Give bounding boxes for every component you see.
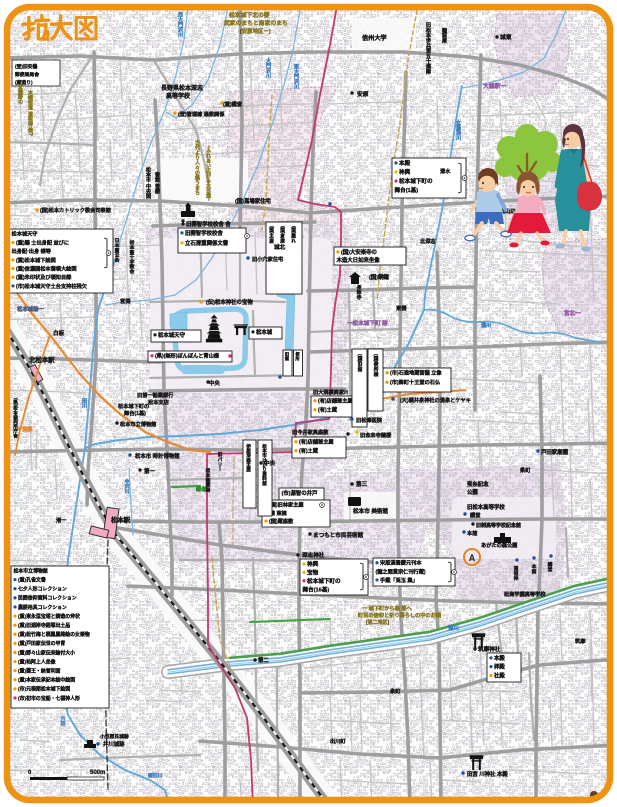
svg-text:(国)馬場家住宅: (国)馬場家住宅 — [235, 197, 272, 205]
svg-text:(重)戸田家伝世の甲冑: (重)戸田家伝世の甲冑 — [18, 640, 65, 647]
svg-text:旧松本歩兵第五十連隊: 旧松本歩兵第五十連隊 — [425, 22, 431, 76]
svg-text:薄川: 薄川 — [448, 624, 459, 632]
svg-text:田川: 田川 — [81, 397, 88, 409]
svg-text:(有)土蔵: (有)土蔵 — [318, 406, 338, 414]
svg-text:公園: 公園 — [467, 488, 478, 496]
svg-text:安曇野の: 安曇野の — [17, 83, 23, 105]
svg-text:県町: 県町 — [520, 466, 531, 474]
svg-text:(伝)松本神社の宝物: (伝)松本神社の宝物 — [206, 298, 253, 306]
svg-text:旧開智学校校舎: 旧開智学校校舎 — [185, 229, 223, 237]
svg-text:旧今井家奥座敷: 旧今井家奥座敷 — [292, 428, 329, 436]
svg-text:(有)店舗兼主屋: (有)店舗兼主屋 — [318, 397, 353, 405]
svg-text:松本市 中央図: 松本市 中央図 — [145, 166, 152, 199]
svg-text:旧松澤医院: 旧松澤医院 — [356, 416, 383, 424]
svg-text:(龍之間貫宗仁刊行蔵): (龍之間貫宗仁刊行蔵) — [376, 567, 426, 575]
svg-text:松本市 時計博物館: 松本市 時計博物館 — [135, 452, 180, 460]
svg-text:(国)旧林家主屋: (国)旧林家主屋 — [269, 501, 304, 509]
svg-text:井川城跡: 井川城跡 — [103, 740, 125, 748]
svg-text:宋版漢書慶元刊本: 宋版漢書慶元刊本 — [380, 559, 422, 567]
svg-text:北松本駅: 北松本駅 — [29, 355, 55, 364]
svg-text:(重)松本城下絵図: (重)松本城下絵図 — [16, 256, 56, 264]
svg-text:松本市 美術館: 松本市 美術館 — [353, 507, 389, 515]
svg-text:便所: 便所 — [295, 351, 301, 362]
svg-text:田宮 川神社 本殿: 田宮 川神社 本殿 — [467, 770, 508, 778]
svg-text:伊原漆器主屋: 伊原漆器主屋 — [246, 443, 252, 473]
svg-text:(重)松竹梅と桐鳳凰蒔絵の女乗物: (重)松竹梅と桐鳳凰蒔絵の女乗物 — [18, 631, 90, 638]
svg-text:出川町: 出川町 — [330, 737, 346, 745]
svg-text:宮北一: 宮北一 — [564, 309, 581, 317]
svg-text:松本城下町の: 松本城下町の — [307, 577, 341, 585]
svg-text:筑摩: 筑摩 — [575, 637, 586, 645]
svg-text:高等学校: 高等学校 — [166, 92, 191, 100]
svg-text:民間信仰資料コレクション: 民間信仰資料コレクション — [18, 595, 77, 602]
svg-text:(国)蔵座敷: (国)蔵座敷 — [269, 517, 294, 525]
svg-text:神輿: 神輿 — [307, 560, 319, 568]
svg-text:(重)本家伝承記本絵中絵図: (重)本家伝承記本絵中絵図 — [18, 677, 75, 684]
svg-text:西大門沢川: 西大門沢川 — [177, 11, 184, 38]
svg-text:旧松本高等学校: 旧松本高等学校 — [467, 503, 505, 511]
svg-text:松本郵便局: 松本郵便局 — [205, 467, 210, 493]
svg-text:書館 普請: 書館 普請 — [154, 171, 161, 194]
svg-text:旧小穴家住宅: 旧小穴家住宅 — [252, 255, 283, 263]
svg-text:松本支店: 松本支店 — [148, 398, 169, 406]
svg-text:旧大規模商家H: 旧大規模商家H — [313, 388, 348, 396]
svg-text:(重)祐阿上人坐像: (重)祐阿上人坐像 — [18, 658, 56, 665]
svg-text:第二: 第二 — [258, 656, 269, 664]
svg-text:(市)飾町十王堂の石仏: (市)飾町十王堂の石仏 — [390, 378, 441, 386]
svg-text:旧パリー: 旧パリー — [217, 451, 222, 471]
svg-text:講堂: 講堂 — [547, 561, 552, 573]
svg-text:第一: 第一 — [144, 467, 155, 475]
svg-text:本殿: 本殿 — [494, 654, 505, 662]
svg-text:渚一: 渚一 — [56, 516, 67, 524]
svg-text:松本城天守: 松本城天守 — [12, 230, 38, 238]
svg-text:手鑑「兎玉 集」: 手鑑「兎玉 集」 — [380, 576, 418, 584]
svg-text:(重)旧湖岸寺経塚出土品: (重)旧湖岸寺経塚出土品 — [18, 622, 70, 629]
svg-text:武家のまちと商家のまち: 武家のまちと商家のまち — [224, 19, 288, 27]
svg-text:(重)朱印状及び領知目録: (重)朱印状及び領知目録 — [16, 273, 72, 281]
svg-text:本館: 本館 — [531, 563, 536, 575]
svg-text:講堂: 講堂 — [470, 511, 480, 519]
svg-text:松本城天守: 松本城天守 — [158, 331, 186, 339]
svg-text:松本城下町の: 松本城下町の — [399, 177, 433, 185]
svg-text:中央: 中央 — [209, 379, 220, 387]
svg-text:(天)槻井泉神社の湧泉とケヤキ: (天)槻井泉神社の湧泉とケヤキ — [400, 396, 471, 404]
svg-text:湯川: 湯川 — [481, 322, 491, 329]
svg-text:蚕糸記念: 蚕糸記念 — [466, 480, 489, 488]
svg-text:旧開智学校校舎 舎: 旧開智学校校舎 舎 — [186, 220, 231, 228]
svg-text:(国)銅鐘: (国)銅鐘 — [369, 273, 389, 281]
svg-text:社殿: 社殿 — [493, 672, 505, 680]
svg-text:松本城下北の要: 松本城下北の要 — [229, 11, 270, 19]
svg-text:信州大学: 信州大学 — [362, 34, 387, 42]
svg-text:松本駅: 松本駅 — [111, 515, 131, 524]
svg-text:(国)離れ: (国)離れ — [291, 226, 297, 244]
svg-text:白板: 白板 — [53, 329, 65, 337]
svg-text:出身配·出身 帳等: 出身配·出身 帳等 — [12, 247, 52, 255]
svg-text:(国)大安楽寺の: (国)大安楽寺の — [341, 248, 378, 256]
svg-text:(重)賜 士出身配 並びに: (重)賜 士出身配 並びに — [16, 238, 69, 246]
svg-text:(有)店舗兼主屋: (有)店舗兼主屋 — [299, 438, 334, 446]
svg-text:宝物: 宝物 — [307, 569, 319, 577]
svg-text:(重)蘭王・納曽利面: (重)蘭王・納曽利面 — [18, 668, 60, 675]
svg-text:女鳥羽川: 女鳥羽川 — [455, 119, 462, 141]
svg-text:旧念来寺鐘楼: 旧念来寺鐘楼 — [360, 431, 392, 439]
svg-text:拝殿: 拝殿 — [494, 663, 505, 671]
svg-text:旧第一勧業銀行: 旧第一勧業銀行 — [137, 391, 174, 399]
svg-text:(国)主屋: (国)主屋 — [269, 226, 275, 244]
svg-text:北深志: 北深志 — [420, 237, 436, 245]
svg-text:清水: 清水 — [440, 167, 451, 175]
svg-text:木崎街道 道祖神 健?: 木崎街道 道祖神 健? — [27, 89, 34, 135]
svg-text:中央: 中央 — [264, 459, 276, 467]
svg-text:長野県松本深志: 長野県松本深志 — [161, 84, 203, 92]
svg-text:神輿: 神輿 — [399, 168, 411, 176]
svg-text:泉町: 泉町 — [389, 687, 401, 695]
svg-text:(県)松本裁判所庁舎: (県)松本裁判所庁舎 — [13, 398, 19, 439]
svg-text:松本市立博物館: 松本市立博物館 — [14, 567, 48, 574]
svg-text:戸田家廟園: 戸田家廟園 — [541, 448, 569, 456]
svg-text:松商学園高等学校: 松商学園高等学校 — [504, 590, 546, 598]
svg-text:古代より人々の集うまち: 古代より人々の集うまち — [194, 139, 201, 196]
svg-text:大門沢川: 大門沢川 — [265, 57, 272, 79]
svg-text:~ふれあい広がる大日堂~: ~ふれあい広がる大日堂~ — [205, 145, 211, 201]
svg-text:一松本城下町 跡: 一松本城下町 跡 — [347, 319, 388, 327]
svg-text:小笠原氏城跡: 小笠原氏城跡 — [99, 733, 129, 740]
svg-text:一 城下町から森 部へ: 一 城下町から森 部へ — [362, 604, 412, 612]
svg-text:(重)信濃国松本藩領大絵図: (重)信濃国松本藩領大絵図 — [16, 265, 77, 273]
svg-text:旧館: 旧館 — [285, 351, 290, 362]
svg-text:(国)倉庫: (国)倉庫 — [280, 226, 286, 244]
svg-text:松本城下町の: 松本城下町の — [118, 402, 149, 410]
svg-text:舞台(16基): 舞台(16基) — [303, 585, 330, 593]
svg-text:(重)東永逗宝塔と鋳造の斧状: (重)東永逗宝塔と鋳造の斧状 — [18, 613, 80, 620]
svg-text:城東: 城東 — [500, 33, 512, 41]
svg-text:第三: 第三 — [355, 480, 368, 488]
svg-text:(市)源智の井戸: (市)源智の井戸 — [282, 489, 319, 497]
svg-text:城北: 城北 — [274, 243, 286, 251]
svg-text:糧秣庫: 糧秣庫 — [441, 27, 448, 44]
svg-text:東側: 東側 — [396, 304, 406, 312]
svg-text:松本城: 松本城 — [256, 328, 273, 336]
svg-text:本館: 本館 — [467, 529, 477, 537]
svg-text:本殿: 本殿 — [399, 159, 411, 167]
svg-text:安原: 安原 — [357, 90, 369, 98]
svg-text:宮渕: 宮渕 — [120, 297, 130, 305]
svg-text:A: A — [469, 553, 476, 563]
svg-text:松本市立博物館: 松本市立博物館 — [120, 420, 156, 428]
svg-text:(市)石造地蔵菩薩 立像: (市)石造地蔵菩薩 立像 — [390, 369, 442, 377]
svg-text:旧制高等学校記念館: 旧制高等学校記念館 — [476, 522, 521, 529]
svg-text:町民の信仰と祈り暮らしの中のお願: 町民の信仰と祈り暮らしの中のお願 — [358, 611, 442, 619]
svg-text:穴田: 穴田 — [60, 715, 65, 727]
svg-text:木造大日如来坐像: 木造大日如来坐像 — [336, 256, 381, 264]
svg-text:七夕人形コレクション: 七夕人形コレクション — [18, 586, 67, 593]
svg-text:鎌田川: 鎌田川 — [147, 772, 163, 779]
svg-text:(国)松本カトリック教会司祭館: (国)松本カトリック教会司祭館 — [40, 206, 111, 214]
svg-text:立石清重関係文書: 立石清重関係文書 — [185, 239, 229, 247]
svg-text:(市)元禄期松本城下絵図: (市)元禄期松本城下絵図 — [18, 686, 70, 693]
svg-text:(登)管理棟 通教関係: (登)管理棟 通教関係 — [178, 110, 225, 118]
svg-text:[安原地区ー]: [安原地区ー] — [240, 27, 271, 35]
svg-text:[第二地区]: [第二地区] — [366, 619, 390, 626]
svg-text:(市)松本城天守土台支持柱残欠: (市)松本城天守土台支持柱残欠 — [16, 282, 88, 290]
svg-text:舞台(1基): 舞台(1基) — [124, 409, 146, 417]
svg-text:千国道: 千国道 — [17, 425, 33, 433]
svg-text:(重)野々山家伝来鎗付大小: (重)野々山家伝来鎗付大小 — [18, 649, 75, 656]
svg-text:(重)講堂: (重)講堂 — [223, 100, 242, 108]
svg-text:大橋駅一: 大橋駅一 — [483, 82, 506, 90]
svg-text:農耕用具コレクション: 農耕用具コレクション — [18, 604, 67, 611]
svg-text:松本城跡一: 松本城跡一 — [17, 305, 45, 313]
svg-text:長称寺: 長称寺 — [356, 284, 361, 301]
svg-text:(有)土蔵: (有)土蔵 — [299, 447, 319, 455]
svg-text:500m: 500m — [90, 770, 105, 776]
svg-text:(県)(無形)ぼんぼんと青山様: (県)(無形)ぼんぼんと青山様 — [155, 352, 220, 360]
svg-text:舞台(1基): 舞台(1基) — [395, 186, 419, 194]
svg-text:(市)初市の宝船・七福神人形: (市)初市の宝船・七福神人形 — [18, 695, 80, 702]
svg-text:(登)旧安曇: (登)旧安曇 — [15, 63, 38, 70]
svg-text:まつもと市民芸術館: まつもと市民芸術館 — [313, 531, 364, 539]
svg-text:郵便局局舎: 郵便局局舎 — [15, 71, 39, 78]
svg-text:深志神社: 深志神社 — [302, 551, 325, 559]
svg-text:東大門沢川: 東大門沢川 — [293, 63, 300, 90]
svg-text:(重)孔雀文書: (重)孔雀文書 — [18, 577, 46, 584]
